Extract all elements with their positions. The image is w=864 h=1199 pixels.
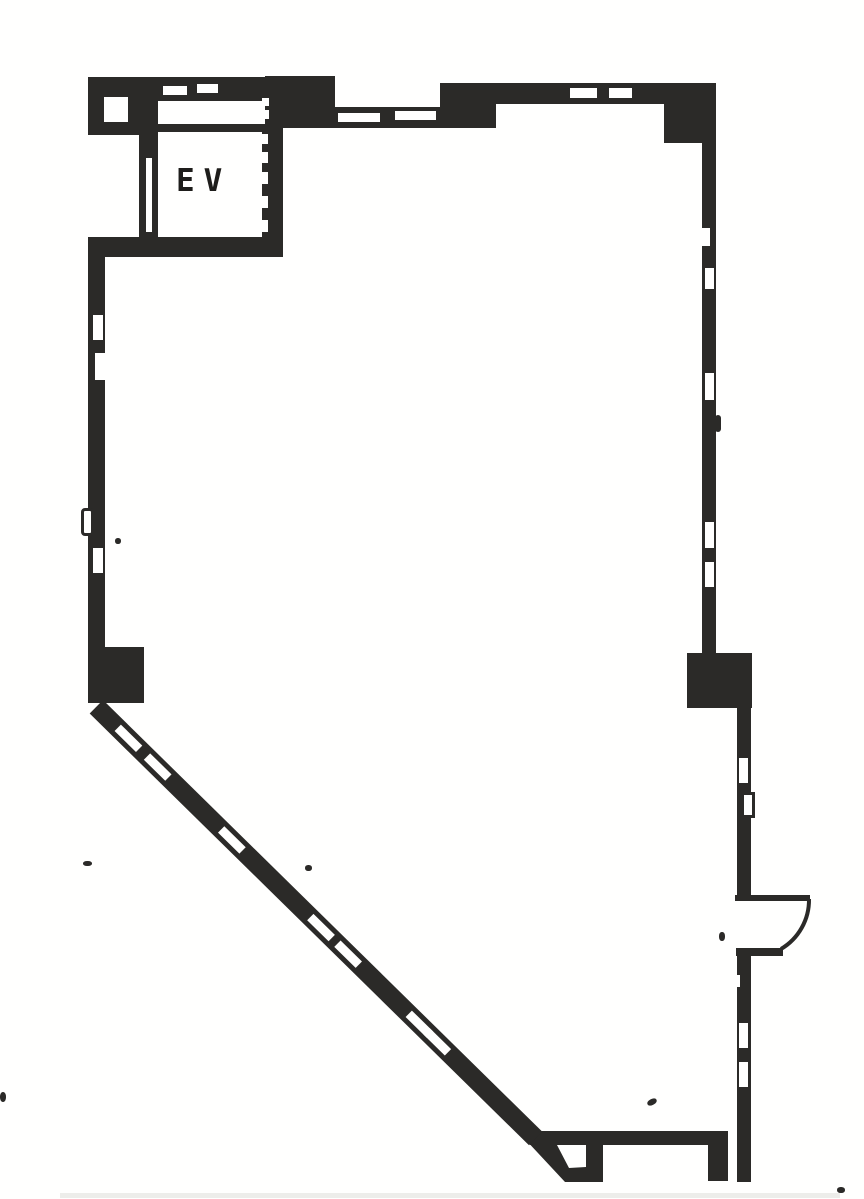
- scan-speck: [719, 932, 725, 941]
- entry-protrusion: [524, 1138, 603, 1182]
- scan-speck: [0, 1092, 6, 1102]
- scan-smudge: [60, 1193, 840, 1198]
- scan-speck: [305, 865, 312, 871]
- floor-plan: EV: [0, 0, 864, 1199]
- door-and-entry-overlay: [0, 0, 864, 1199]
- scan-speck: [83, 861, 92, 866]
- door-swing-arc: [781, 899, 809, 949]
- scan-speck: [115, 538, 121, 544]
